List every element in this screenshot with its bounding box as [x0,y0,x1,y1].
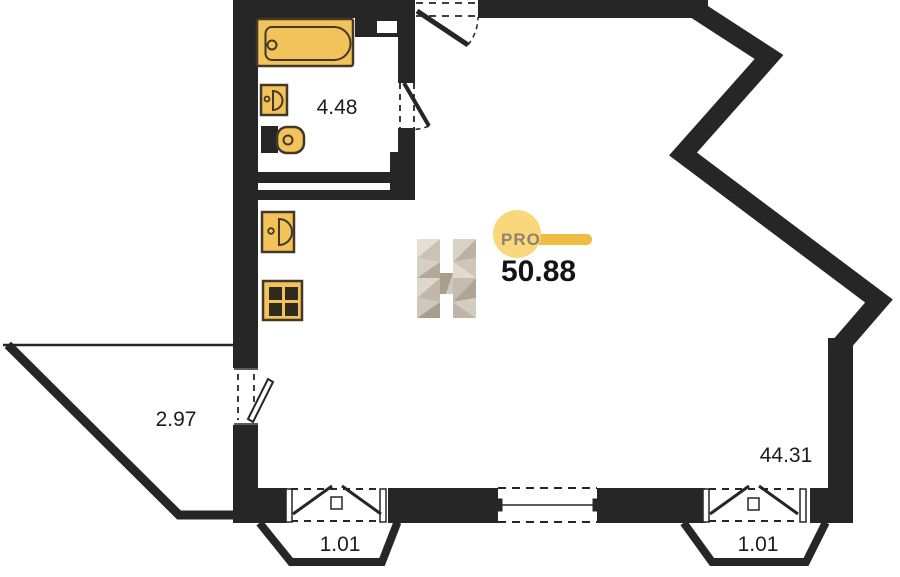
door-leaf [404,83,429,126]
bay-window-right [703,486,806,522]
total-area-label: 50.88 [501,255,576,288]
door-leaf [248,379,273,422]
bay-window-left [286,486,386,522]
wall-top-right [478,0,708,18]
bathroom-area-label: 4.48 [317,96,358,119]
balcony-slant-edge [11,348,237,515]
window-sash [342,486,381,514]
entrance-door [416,3,478,45]
fixed-window-center [494,488,601,522]
balcony-door [234,369,273,424]
wall-bathroom-bottom-connector [390,152,415,200]
brand-logo-h [417,239,476,318]
toilet-bowl [277,127,304,153]
windows [286,486,806,522]
window-sash [710,486,749,514]
bay-right-area-label: 1.01 [738,533,779,556]
bathroom-door [400,83,429,130]
fixtures [257,19,353,320]
window-handle [748,498,759,510]
floor-plan-canvas: PRO 50.88 4.48 2.97 44.31 1.01 1.01 [0,0,900,577]
washbasin-icon [261,85,287,115]
toilet-cistern [261,126,278,153]
balcony-outline [3,345,237,515]
wall-bottom-d [810,488,853,523]
bay-left-area-label: 1.01 [320,533,361,556]
wall-right-zigzag [683,9,879,345]
pro-label: PRO [501,230,541,249]
window-handle [331,497,342,509]
door-swing-arc [404,126,429,130]
balcony-area-label: 2.97 [156,408,197,431]
wall-bottom-b [388,488,498,523]
wall-left-upper [233,0,258,368]
wall-niche [377,21,397,33]
wall-bathroom-bottom-band2 [246,190,412,200]
pro-badge: PRO [493,210,592,258]
window-sash [759,486,798,514]
wall-bathroom-right-upper [398,18,415,83]
bathtub-icon [257,19,353,66]
wall-bottom-c [597,488,705,523]
door-swing-arc [468,17,478,45]
living-area-label: 44.31 [760,444,813,467]
wall-bathroom-bottom-band1 [246,172,392,183]
accent-bar [533,234,592,245]
kitchen-sink-icon [262,212,294,252]
window-sash [293,486,332,514]
toilet-icon [261,126,304,153]
stove-icon [263,281,302,320]
wall-top-left [233,0,415,18]
